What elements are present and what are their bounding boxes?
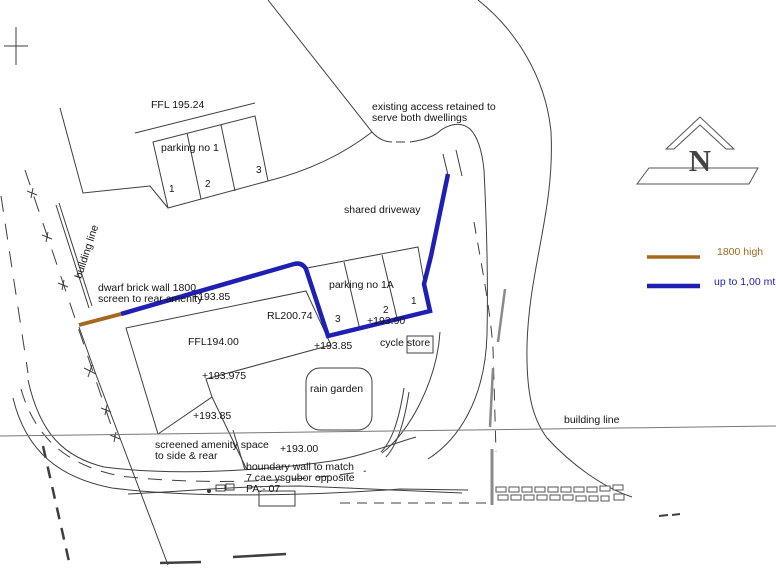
label-rain-garden: rain garden	[310, 384, 363, 395]
label-boundary-wall-line3: PA:- 07	[246, 484, 355, 495]
north-letter: N	[689, 143, 711, 178]
boundary-wall-hatch	[496, 485, 624, 501]
north-indicator: N	[637, 117, 758, 184]
label-dwarf-wall-line2: screen to rear amenity	[98, 294, 202, 305]
legend-label-up-to-1m: up to 1,00 mtr	[714, 277, 776, 288]
label-dwarf-wall: dwarf brick wall 1800 screen to rear ame…	[98, 283, 202, 305]
legend-label-1800-high: 1800 high	[717, 247, 763, 258]
label-existing-access: existing access retained to serve both d…	[372, 102, 496, 124]
label-existing-access-line2: serve both dwellings	[372, 113, 496, 124]
bay-number: 1	[169, 184, 175, 195]
label-boundary-wall: boundary wall to match 7 cae ysgubor opp…	[246, 462, 355, 495]
label-rl-200-74: RL200.74	[267, 311, 313, 322]
label-parking-no-1a: parking no 1A	[329, 280, 394, 291]
bay-number: 3	[335, 314, 341, 325]
label-ffl-195-24: FFL 195.24	[151, 100, 204, 111]
level-annotation: +193.90	[367, 316, 405, 327]
bay-number: 1	[411, 296, 417, 307]
label-shared-driveway: shared driveway	[344, 205, 420, 216]
bay-number: 3	[256, 165, 262, 176]
label-ffl-194-00: FFL194.00	[188, 337, 239, 348]
bay-number: 2	[205, 179, 211, 190]
level-annotation: +193.85	[314, 341, 352, 352]
level-annotation: +193.00	[280, 444, 318, 455]
level-annotation: +193.975	[202, 371, 246, 382]
label-screened-amenity: screened amenity space to side & rear	[155, 440, 269, 462]
label-building-line-right: building line	[564, 415, 619, 426]
rain-garden-outline	[306, 368, 372, 430]
level-annotation: +193.85	[193, 411, 231, 422]
driveway-east-edge	[428, 124, 487, 459]
wall-1800-line	[79, 314, 121, 325]
survey-cross	[4, 27, 28, 65]
label-parking-no-1: parking no 1	[161, 143, 219, 154]
label-cycle-store: cycle store	[380, 338, 430, 349]
level-annotation: +193.85	[192, 292, 230, 303]
site-plan-drawing: N FFL 195.24 parking no 1 1 2 3 existing…	[0, 0, 776, 571]
grey-boundary-dashes	[490, 289, 505, 505]
